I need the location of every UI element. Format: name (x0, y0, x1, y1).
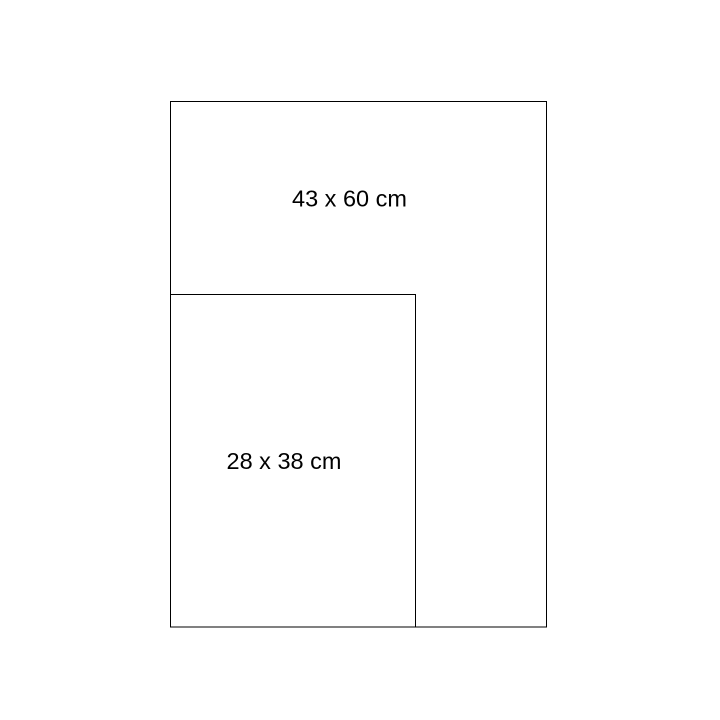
svg-text:28 x 38 cm: 28 x 38 cm (227, 448, 342, 474)
svg-text:43 x 60 cm: 43 x 60 cm (292, 186, 407, 212)
